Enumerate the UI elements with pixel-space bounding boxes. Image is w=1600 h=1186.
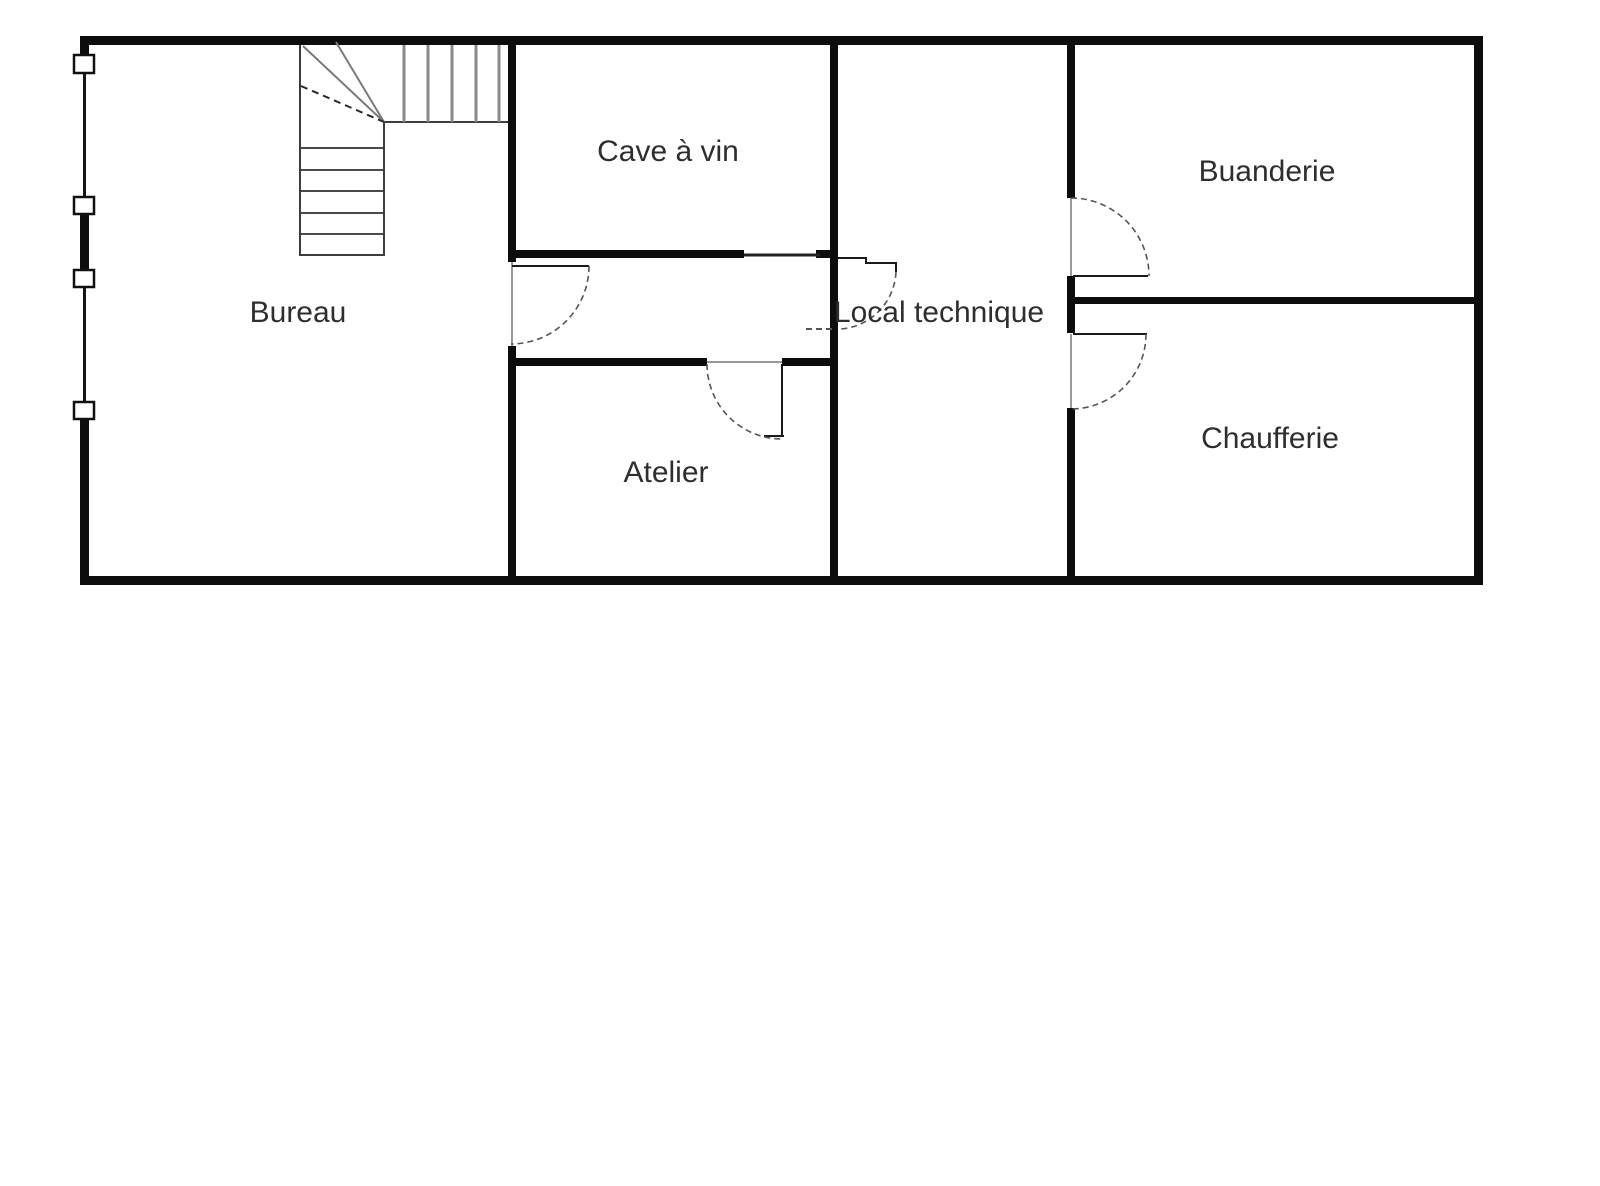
stair-winder-diagonal-dashed	[301, 86, 384, 122]
door-leaf-local	[838, 258, 896, 272]
labels-layer: Bureau Cave à vin Atelier Local techniqu…	[250, 135, 1339, 489]
door-arc-chaufferie	[1071, 334, 1146, 409]
stair-winder-diagonal-2	[336, 42, 384, 122]
room-label-bureau: Bureau	[250, 296, 347, 329]
wall-cave-bottom	[516, 250, 744, 258]
wall-buanderie-chaufferie	[1075, 297, 1474, 304]
window-left-4	[74, 402, 94, 419]
window-left-2	[74, 197, 94, 214]
wall-atelier-top-west	[516, 358, 707, 366]
stair-winder-diagonal-1	[303, 46, 384, 122]
wall-bureau-atelier-lower	[508, 346, 516, 576]
room-label-cave-a-vin: Cave à vin	[597, 135, 739, 168]
window-left-3	[74, 270, 94, 287]
door-arc-buanderie	[1071, 198, 1149, 276]
wall-atelier-top-east	[782, 358, 830, 366]
outer-wall-bottom	[80, 576, 1483, 585]
door-arc-atelier	[707, 364, 782, 439]
wall-local-east-seg1	[1067, 45, 1075, 198]
room-label-local-technique: Local technique	[834, 296, 1044, 329]
outer-wall-left-seg3	[80, 419, 89, 585]
door-arc-bureau	[511, 266, 589, 344]
floor-plan-drawing: Bureau Cave à vin Atelier Local techniqu…	[0, 0, 1600, 1186]
wall-local-east-seg3	[1067, 408, 1075, 576]
window-left-1	[74, 55, 94, 73]
outer-wall-top	[80, 36, 1483, 45]
room-label-buanderie: Buanderie	[1199, 155, 1336, 188]
wall-bureau-cave-upper	[508, 45, 516, 262]
lines-layer	[85, 42, 1072, 408]
outer-wall-right	[1474, 36, 1483, 585]
outer-wall-left-seg2	[80, 214, 89, 271]
floor-plan-canvas: Bureau Cave à vin Atelier Local techniqu…	[0, 0, 1600, 1186]
room-label-atelier: Atelier	[623, 456, 708, 489]
wall-local-east-seg2	[1067, 276, 1075, 333]
room-label-chaufferie: Chaufferie	[1201, 422, 1339, 455]
